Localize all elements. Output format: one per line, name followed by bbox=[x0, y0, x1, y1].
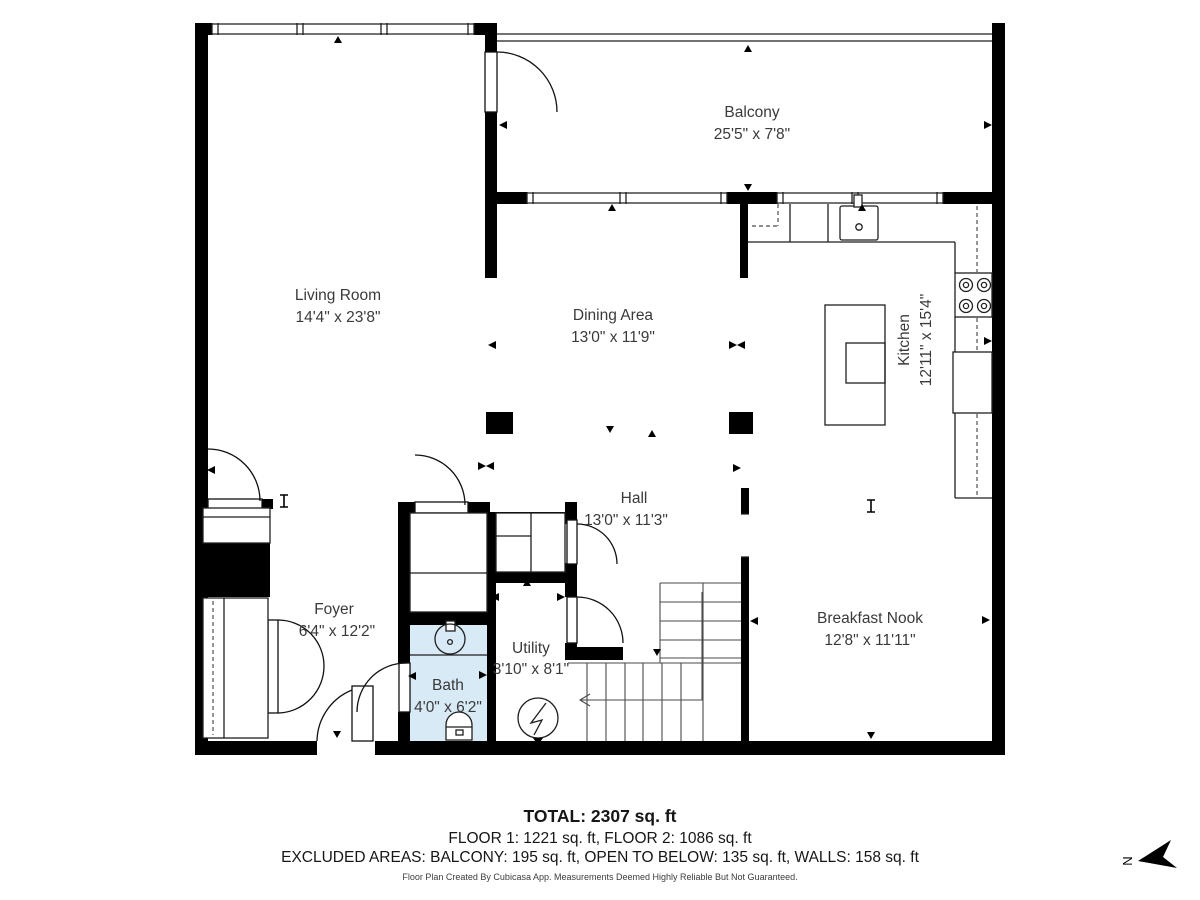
room-label-breakfast-nook: Breakfast Nook bbox=[817, 610, 923, 627]
room-dims-breakfast-nook: 12'8" x 11'11" bbox=[824, 632, 915, 649]
utility-fixtures bbox=[518, 698, 558, 745]
hall-closet-right bbox=[496, 513, 565, 572]
room-dims-bath: 4'0" x 6'2" bbox=[414, 699, 482, 716]
wall-opening bbox=[741, 514, 749, 557]
stove-icon bbox=[955, 273, 992, 317]
fridge-icon bbox=[953, 352, 992, 413]
door-hall-lower bbox=[567, 597, 623, 643]
compass: N bbox=[1120, 840, 1177, 868]
room-label-living-room: Living Room bbox=[295, 287, 381, 304]
room-label-utility: Utility bbox=[512, 640, 550, 657]
summary-floors: FLOOR 1: 1221 sq. ft, FLOOR 2: 1086 sq. … bbox=[448, 830, 752, 847]
door-entry bbox=[317, 686, 375, 755]
door-living-foyer bbox=[208, 449, 262, 509]
floor-plan-page: Living Room 14'4" x 23'8" Balcony 25'5" … bbox=[0, 0, 1200, 900]
room-dims-dining-area: 13'0" x 11'9" bbox=[571, 329, 655, 346]
summary-disclaimer: Floor Plan Created By Cubicasa App. Meas… bbox=[402, 872, 797, 882]
room-dims-balcony: 25'5" x 7'8" bbox=[714, 126, 790, 143]
foyer-upper-cabinet bbox=[203, 508, 270, 543]
room-label-balcony: Balcony bbox=[724, 104, 779, 121]
hall-closet-left bbox=[410, 513, 487, 612]
room-dims-hall: 13'0" x 11'3" bbox=[584, 512, 668, 529]
foyer-tall-closet bbox=[203, 598, 268, 738]
room-label-foyer: Foyer bbox=[314, 601, 354, 618]
summary-excluded: EXCLUDED AREAS: BALCONY: 195 sq. ft, OPE… bbox=[281, 849, 919, 866]
balcony-rail bbox=[497, 34, 992, 41]
window-icon bbox=[527, 192, 727, 204]
door-balcony bbox=[485, 52, 557, 112]
room-dims-foyer: 6'4" x 12'2" bbox=[299, 623, 375, 640]
summary-total: TOTAL: 2307 sq. ft bbox=[524, 806, 677, 826]
door-hall-closet bbox=[415, 455, 468, 513]
north-arrow-icon bbox=[1138, 840, 1177, 868]
room-label-kitchen: Kitchen bbox=[896, 314, 913, 366]
north-label: N bbox=[1120, 856, 1135, 865]
room-dims-utility: 3'10" x 8'1" bbox=[493, 661, 569, 678]
kitchen-island bbox=[825, 305, 885, 425]
room-dims-kitchen: 12'11" x 15'4" bbox=[918, 294, 935, 386]
kitchen-fixtures bbox=[748, 195, 992, 498]
room-label-dining-area: Dining Area bbox=[573, 307, 654, 324]
water-heater-icon bbox=[518, 698, 558, 745]
room-dims-living-room: 14'4" x 23'8" bbox=[295, 309, 380, 326]
toilet-icon bbox=[446, 712, 472, 740]
floor-plan-canvas: Living Room 14'4" x 23'8" Balcony 25'5" … bbox=[0, 0, 1200, 900]
staircase bbox=[568, 583, 741, 741]
room-label-hall: Hall bbox=[621, 490, 648, 507]
summary-block: TOTAL: 2307 sq. ft FLOOR 1: 1221 sq. ft,… bbox=[281, 806, 919, 882]
closets bbox=[203, 508, 565, 738]
window-icon bbox=[212, 23, 474, 35]
room-label-bath: Bath bbox=[432, 677, 464, 694]
